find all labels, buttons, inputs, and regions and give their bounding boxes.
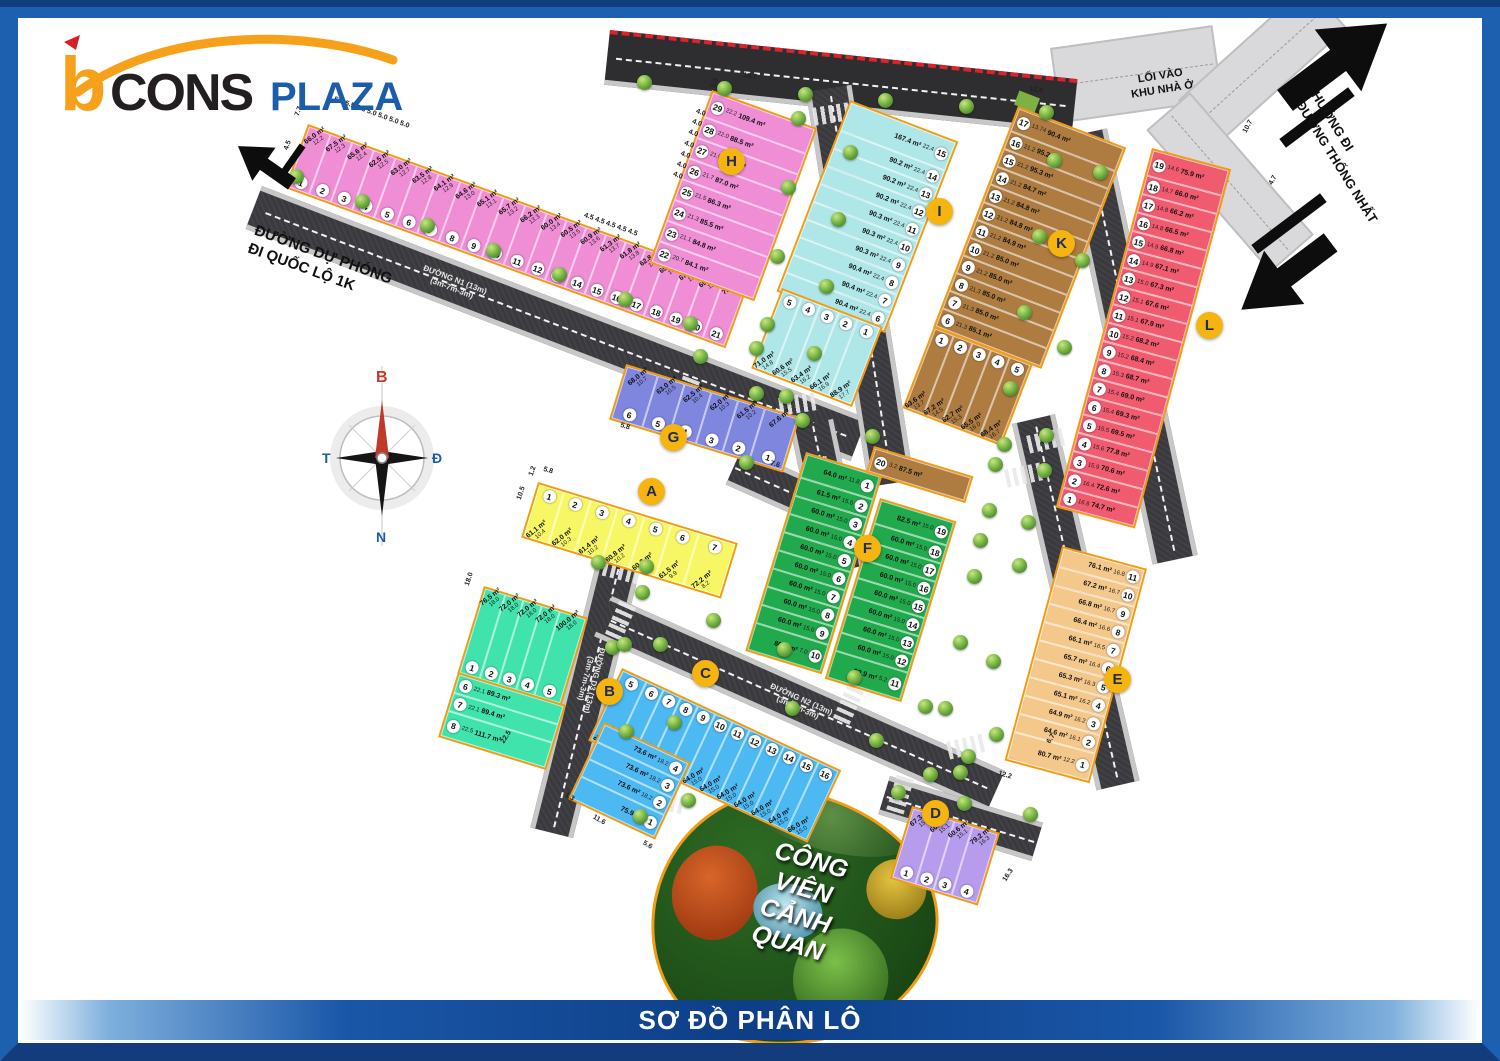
lot-number: 11 xyxy=(904,221,921,238)
tree-icon xyxy=(591,555,606,570)
tree-icon xyxy=(749,341,764,356)
lot-number: 4 xyxy=(667,759,684,776)
tree-icon xyxy=(785,701,800,716)
tree-icon xyxy=(865,429,880,444)
lot-area: 68.4 m² xyxy=(1130,355,1155,368)
lot-number: 3 xyxy=(659,777,676,794)
lot-dimension: 14.7 xyxy=(1161,187,1174,196)
lot-dimension: 16.2 xyxy=(1073,716,1086,725)
lot-dimension: 14.6 xyxy=(1167,165,1180,174)
lot-dimension: 15.0 xyxy=(824,552,837,561)
tree-icon xyxy=(1057,340,1072,355)
lot-area: 84.1 m² xyxy=(684,259,709,274)
lot-number: 3 xyxy=(501,671,517,687)
tree-icon xyxy=(1039,428,1054,443)
lot-dimension: 21.1 xyxy=(679,234,692,244)
lot-dimension: 21.2 xyxy=(1016,161,1029,171)
tree-icon xyxy=(807,346,822,361)
lot-area: 80.7 m² xyxy=(1037,749,1062,762)
lot-area: 90.2 m² xyxy=(875,192,900,207)
lot-area: 60.0 m² xyxy=(884,553,909,567)
lot-number: 2 xyxy=(853,498,869,514)
lot-area: 64.9 m² xyxy=(1048,708,1073,721)
lot-number: 2 xyxy=(730,440,746,456)
lot-number: 5 xyxy=(781,294,798,311)
lot-number: 2 xyxy=(1067,473,1083,489)
lot-number: 5 xyxy=(623,675,640,692)
lot-number: 3 xyxy=(937,876,953,892)
tree-icon xyxy=(618,292,633,307)
lot-number: 12 xyxy=(911,203,928,220)
lot-dimension: 15.6 xyxy=(1092,443,1105,452)
lot-area: 90.4 m² xyxy=(847,263,872,278)
lot-number: 7 xyxy=(825,589,841,605)
tree-icon xyxy=(967,569,982,584)
title-bar: SƠ ĐỒ PHÂN LÔ xyxy=(20,1000,1480,1040)
tree-icon xyxy=(918,699,933,714)
lot-dimension: 21.3 xyxy=(955,321,968,331)
edge-dimension: 10.5 xyxy=(514,485,529,501)
lot-dimension: 22.1 xyxy=(473,686,486,695)
lot-area: 95.3 m² xyxy=(1029,166,1054,181)
lot-number: 13 xyxy=(1121,271,1137,287)
lot-area-group: 66.0 m²15.0 xyxy=(786,816,813,840)
lot-number: 8 xyxy=(883,274,900,291)
lot-area: 67.2 m² xyxy=(1082,580,1107,593)
lot-dimension: 15.4 xyxy=(1102,407,1115,416)
lot-area: 60.0 m² xyxy=(782,598,807,612)
lot-area-group: 79.2 m²16.3 xyxy=(969,826,996,851)
lot-area: 84.8 m² xyxy=(691,238,716,253)
lot-number: 10 xyxy=(967,241,984,258)
lot-area: 69.3 m² xyxy=(1115,410,1140,423)
lot-number: 5 xyxy=(379,206,396,223)
lot-dimension: 15.0 xyxy=(835,515,848,524)
edge-dimension: 10.4 xyxy=(1028,84,1043,97)
lot-number: 10 xyxy=(1120,587,1136,603)
lot-number: 6 xyxy=(1086,399,1102,415)
lot-number: 8 xyxy=(820,607,836,623)
logo-b: b xyxy=(60,42,106,126)
lot-dimension: 15.0 xyxy=(841,497,854,506)
tree-icon xyxy=(779,389,794,404)
lot-number: 19 xyxy=(933,523,949,539)
lot-dimension: 15.0 xyxy=(819,570,832,579)
lot-number: 14 xyxy=(905,617,921,633)
lot-area: 85.5 m² xyxy=(699,218,724,233)
tree-icon xyxy=(1093,165,1108,180)
lot-number: 7 xyxy=(946,295,963,312)
lot-dimension: 16.8 xyxy=(1077,498,1090,507)
lot-dimension: 15.0 xyxy=(904,580,917,589)
lot-area: 167.4 m² xyxy=(893,132,922,149)
lot-area: 61.5 m² xyxy=(816,489,841,503)
lot-dimension: 22.4 xyxy=(879,255,892,265)
lot-dimension: 15.1 xyxy=(1131,297,1144,306)
lot-area: 60.0 m² xyxy=(788,580,813,594)
block-badge-G: G xyxy=(660,424,687,451)
lot-area: 60.0 m² xyxy=(805,525,830,539)
lot-number: 4 xyxy=(519,676,535,692)
lot-number: 10 xyxy=(807,648,823,664)
lot-dimension: 22.4 xyxy=(865,290,878,300)
lot-area: 67.6 m² xyxy=(768,409,791,430)
lot-number: 2 xyxy=(567,496,583,512)
lot-area: 60.0 m² xyxy=(794,562,819,576)
lot-dimension: 22.4 xyxy=(899,202,912,212)
lot-number: 25 xyxy=(679,184,696,201)
edge-dimension: 18.7 xyxy=(742,70,757,83)
lot-dimension: 22.4 xyxy=(872,273,885,283)
lot-number: 16 xyxy=(816,766,833,783)
tree-icon xyxy=(869,733,884,748)
compass-rose: B Đ N T xyxy=(322,366,442,551)
lot-number: 5 xyxy=(1082,418,1098,434)
lot-area: 68.7 m² xyxy=(1125,373,1150,386)
tree-icon xyxy=(953,765,968,780)
edge-dimension: 5.8 xyxy=(542,464,555,478)
tree-icon xyxy=(667,715,682,730)
lot-area: 84.8 m² xyxy=(1008,219,1033,234)
lot-dimension: 15.0 xyxy=(1136,278,1149,287)
lot-number: 19 xyxy=(1151,158,1167,174)
lot-area: 90.3 m² xyxy=(861,227,886,242)
lot-number: 12 xyxy=(746,733,763,750)
lot-area: 90.4 m² xyxy=(1046,129,1071,144)
lot-number: 9 xyxy=(466,237,483,254)
lot-number: 2 xyxy=(651,794,668,811)
lot-number: 16 xyxy=(916,580,932,596)
lot-dimension: 15.0 xyxy=(813,588,826,597)
tree-icon xyxy=(843,145,858,160)
lot-area: 77.8 m² xyxy=(1105,446,1130,459)
lot-number: 5 xyxy=(647,521,663,537)
tree-icon xyxy=(635,585,650,600)
lot-number: 3 xyxy=(847,516,863,532)
lot-number: 10 xyxy=(712,717,729,734)
lot-number: 1 xyxy=(933,332,950,349)
lot-area: 66.2 m² xyxy=(1169,208,1194,221)
lot-number: 13 xyxy=(899,635,915,651)
lot-dimension: 13.74 xyxy=(1031,123,1047,134)
lot-area: 67.1 m² xyxy=(1154,263,1179,276)
edge-dimension: 5.6 xyxy=(640,838,654,853)
lot-dimension: 15.0 xyxy=(898,598,911,607)
block-badge-I: I xyxy=(926,198,953,225)
tree-icon xyxy=(739,455,754,470)
lot-number: 15 xyxy=(1131,234,1147,250)
lot-number: 4 xyxy=(1091,697,1107,713)
lot-area: 60.0 m² xyxy=(810,507,835,521)
lot-number: 1 xyxy=(1062,491,1078,507)
tree-icon xyxy=(938,701,953,716)
lot-area-group: 61.5 m²10.2 xyxy=(736,400,763,425)
lot-number: 4 xyxy=(621,513,637,529)
block-badge-K: K xyxy=(1048,230,1075,257)
lot-area: 60.0 m² xyxy=(890,535,915,549)
lot-number: 11 xyxy=(729,725,746,742)
lot-area-group: 88.9 m²17.7 xyxy=(829,380,856,404)
lot-number: 1 xyxy=(464,659,480,675)
lot-number: 6 xyxy=(675,529,691,545)
lot-dimension: 15.0 xyxy=(830,534,843,543)
lot-area: 85.0 m² xyxy=(988,272,1013,287)
lot-dimension: 15.1 xyxy=(1126,315,1139,324)
logo-plaza: PLAZA xyxy=(270,75,403,119)
lot-dimension: 21.2 xyxy=(989,232,1002,242)
lot-number: 10 xyxy=(1106,326,1122,342)
lot-dimension: 15.0 xyxy=(802,624,815,633)
lot-number: 8 xyxy=(444,229,461,246)
lot-area: 60.0 m² xyxy=(879,571,904,585)
site-plan-map: CÔNG VIÊN CẢNH QUAN ĐƯỜNG DỰ PHÓNG ĐI QU… xyxy=(0,0,1500,1061)
lot-area: 85.0 m² xyxy=(995,254,1020,269)
lot-dimension: 18.2 xyxy=(640,791,653,801)
tree-icon xyxy=(637,75,652,90)
edge-dimension: 18.0 xyxy=(462,571,477,587)
lot-dimension: 21.3 xyxy=(968,285,981,295)
lot-F-20: 203.287.5 m² xyxy=(868,448,971,500)
lot-area: 60.0 m² xyxy=(873,590,898,604)
lot-area: 74.7 m² xyxy=(1090,502,1115,515)
lot-area: 68.2 m² xyxy=(1135,336,1160,349)
lot-area: 85.0 m² xyxy=(981,290,1006,305)
lot-number: 12 xyxy=(1116,289,1132,305)
tree-icon xyxy=(798,87,813,102)
lot-area: 87.0 m² xyxy=(714,176,739,191)
lot-dimension: 22.4 xyxy=(886,237,899,247)
frame-top-edge xyxy=(0,0,1500,7)
lot-number: 3 xyxy=(336,190,353,207)
lot-number: 1 xyxy=(859,477,875,493)
block-badge-C: C xyxy=(692,660,719,687)
tree-icon xyxy=(831,212,846,227)
lot-area: 84.8 m² xyxy=(1015,201,1040,216)
lot-area: 111.7 m² xyxy=(474,729,502,744)
lot-number: 27 xyxy=(694,143,711,160)
lot-dimension: 16.7 xyxy=(1103,605,1116,614)
page: CÔNG VIÊN CẢNH QUAN ĐƯỜNG DỰ PHÓNG ĐI QU… xyxy=(0,0,1500,1061)
tree-icon xyxy=(633,809,648,824)
lot-dimension: 20.7 xyxy=(671,255,684,265)
lot-area: 64.0 m² xyxy=(823,469,848,483)
lot-area: 89.3 m² xyxy=(486,689,511,703)
edge-dimension: 16.3 xyxy=(1000,866,1017,883)
lot-dimension: 16.2 xyxy=(1078,697,1091,706)
tree-icon xyxy=(1021,515,1036,530)
lot-number: 3 xyxy=(818,308,835,325)
lot-dimension: 16.1 xyxy=(1068,734,1081,743)
lot-dimension: 22.1 xyxy=(467,704,480,713)
lot-dimension: 15.3 xyxy=(1112,370,1125,379)
lot-area: 90.2 m² xyxy=(881,174,906,189)
lot-dimension: 15.9 xyxy=(1087,462,1100,471)
lot-number: 17 xyxy=(921,562,937,578)
tree-icon xyxy=(1039,105,1054,120)
lot-number: 2 xyxy=(837,315,854,332)
logo-cons: CONS xyxy=(110,64,253,122)
lot-number: 14 xyxy=(994,170,1011,187)
lot-number: 9 xyxy=(1115,606,1131,622)
lot-dimension: 14.9 xyxy=(1141,260,1154,269)
lot-number: 8 xyxy=(1096,363,1112,379)
lot-dimension: 16.3 xyxy=(1083,679,1096,688)
lot-number: 7 xyxy=(1105,642,1121,658)
tree-icon xyxy=(781,180,796,195)
lot-dimension: 15.0 xyxy=(882,652,895,661)
tree-icon xyxy=(617,637,632,652)
lot-area-group: 68.0 m²10.7 xyxy=(627,367,654,392)
tree-icon xyxy=(819,279,834,294)
tree-icon xyxy=(355,194,370,209)
lot-number: 4 xyxy=(989,353,1006,370)
lot-number: 12 xyxy=(980,206,997,223)
lot-dimension: 15.0 xyxy=(915,543,928,552)
lot-number: 11 xyxy=(509,253,526,270)
lot-number: 2 xyxy=(1081,734,1097,750)
edge-dimension: 1.2 xyxy=(526,465,540,478)
lot-area: 85.1 m² xyxy=(967,325,992,340)
lot-number: 3 xyxy=(1072,455,1088,471)
lot-number: 8 xyxy=(445,718,461,734)
tree-icon xyxy=(986,654,1001,669)
lot-dimension: 21.3 xyxy=(962,303,975,313)
lot-number: 18 xyxy=(648,304,665,321)
lot-dimension: 16.4 xyxy=(1082,480,1095,489)
road-name-label: ĐƯỜNG N1 (13m) (3m-7m-3m) xyxy=(419,263,488,304)
lot-dimension: 21.5 xyxy=(694,193,707,203)
lot-number: 9 xyxy=(695,709,712,726)
lot-number: 24 xyxy=(671,205,688,222)
tree-icon xyxy=(1003,381,1018,396)
lot-number: 5 xyxy=(836,552,852,568)
edge-dimension: 5.8 xyxy=(619,420,632,434)
lot-area-group: 63.0 m²10.5 xyxy=(655,375,682,400)
lot-area: 75.9 m² xyxy=(1180,168,1205,181)
compass-east: Đ xyxy=(432,450,442,466)
lot-area: 89.4 m² xyxy=(480,708,505,722)
tree-icon xyxy=(1037,463,1052,478)
lot-dimension: 16.5 xyxy=(1093,642,1106,651)
lot-area-group: 72.2 m²8.2 xyxy=(690,570,717,595)
lot-number: 17 xyxy=(1015,115,1032,132)
lot-dimension: 14.8 xyxy=(1156,205,1169,214)
lot-number: 17 xyxy=(1141,198,1157,214)
lot-area: 65.7 m² xyxy=(1063,653,1088,666)
lot-dimension: 21.2 xyxy=(1009,179,1022,189)
lot-area: 86.3 m² xyxy=(707,197,732,212)
lot-area: 109.4 m² xyxy=(737,112,766,128)
lot-number: 9 xyxy=(1101,344,1117,360)
lot-area: 84.9 m² xyxy=(1001,237,1026,252)
lot-number: 4 xyxy=(800,301,817,318)
lot-area: 85.0 m² xyxy=(974,308,999,323)
lot-dimension: 22.4 xyxy=(922,143,935,153)
lot-number: 5 xyxy=(1009,361,1026,378)
tree-icon xyxy=(961,749,976,764)
lot-area: 76.1 m² xyxy=(1087,562,1112,575)
lot-number: 4 xyxy=(1077,436,1093,452)
lot-area: 66.4 m² xyxy=(1073,617,1098,630)
lot-number: 3 xyxy=(594,504,610,520)
lot-area: 60.0 m² xyxy=(868,608,893,622)
lot-number: 28 xyxy=(701,122,718,139)
lot-area: 66.0 m² xyxy=(1174,190,1199,203)
lot-dimension: 7.0 xyxy=(798,648,808,656)
tree-icon xyxy=(777,642,792,657)
tree-icon xyxy=(973,533,988,548)
lot-number: 15 xyxy=(798,757,815,774)
tree-icon xyxy=(653,637,668,652)
tree-icon xyxy=(923,767,938,782)
tree-icon xyxy=(1012,558,1027,573)
lot-dimension: 16.4 xyxy=(1088,661,1101,670)
lot-dimension: 21.2 xyxy=(1002,197,1015,207)
lot-number: 7 xyxy=(707,539,723,555)
lot-number: 3 xyxy=(703,432,719,448)
lot-dimension: 15.2 xyxy=(1117,352,1130,361)
lot-area-group: 61.5 m²9.9 xyxy=(658,560,685,585)
lot-number: 14 xyxy=(924,168,941,185)
tree-icon xyxy=(953,635,968,650)
compass-west: T xyxy=(322,450,331,466)
lot-number: 6 xyxy=(940,312,957,329)
lot-number: 9 xyxy=(960,259,977,276)
lot-dimension: 22.4 xyxy=(858,308,871,318)
lot-dimension: 16.8 xyxy=(1113,569,1126,578)
lot-number: 12 xyxy=(894,653,910,669)
lot-number: 1 xyxy=(1075,757,1091,773)
lot-area: 84.7 m² xyxy=(1022,183,1047,198)
lot-number: 23 xyxy=(664,226,681,243)
lot-area: 66.8 m² xyxy=(1159,245,1184,258)
tree-icon xyxy=(791,111,806,126)
lot-number: 15 xyxy=(589,282,606,299)
lot-area: 90.4 m² xyxy=(841,280,866,295)
lot-dimension: 15.0 xyxy=(921,523,934,532)
lot-area: 60.0 m² xyxy=(799,544,824,558)
lot-number: 8 xyxy=(953,277,970,294)
tree-icon xyxy=(770,249,785,264)
lot-number: 20 xyxy=(873,455,889,471)
lot-dimension: 3.2 xyxy=(888,462,898,470)
tree-icon xyxy=(957,796,972,811)
lot-number: 16 xyxy=(1136,216,1152,232)
lot-number: 10 xyxy=(897,239,914,256)
lot-number: 15 xyxy=(1001,153,1018,170)
lot-number: 15 xyxy=(910,598,926,614)
lot-area: 60.0 m² xyxy=(777,616,802,630)
tree-icon xyxy=(997,437,1012,452)
lot-area-group: 61.1 m²10.4 xyxy=(525,519,552,544)
lot-number: 29 xyxy=(709,100,726,117)
lot-area: 66.8 m² xyxy=(1077,598,1102,611)
block-badge-E: E xyxy=(1104,666,1131,693)
lot-number: 2 xyxy=(952,339,969,356)
tree-icon xyxy=(891,785,906,800)
lot-number: 6 xyxy=(401,214,418,231)
lot-area: 66.5 m² xyxy=(1164,226,1189,239)
lot-number: 21 xyxy=(708,325,725,342)
lot-dimension: 22.2 xyxy=(725,108,738,118)
compass-south: N xyxy=(376,529,386,545)
block-badge-A: A xyxy=(638,478,665,505)
lot-number: 15 xyxy=(933,145,950,162)
lot-number: 26 xyxy=(686,164,703,181)
lot-number: 14 xyxy=(1126,253,1142,269)
lot-dimension: 15.0 xyxy=(887,634,900,643)
lot-dimension: 21.2 xyxy=(975,268,988,278)
